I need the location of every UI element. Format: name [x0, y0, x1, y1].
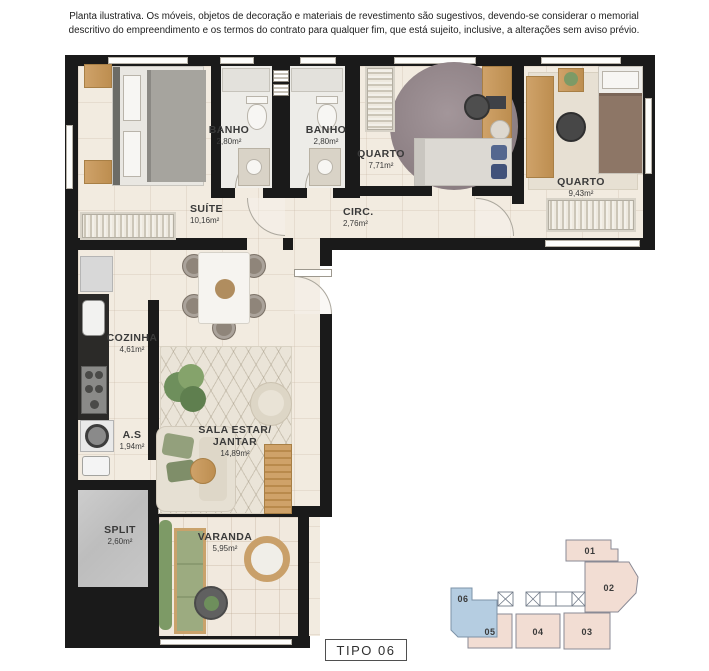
pillow: [123, 131, 141, 177]
keyplan-unit-label: 03: [581, 627, 592, 637]
room-name: VARANDA: [198, 531, 253, 543]
pillow: [491, 145, 507, 160]
burner: [95, 385, 103, 393]
key-plan: 01 02 03 04 05 06: [450, 536, 709, 658]
toilet-icon: [316, 96, 338, 104]
plant-icon: [564, 72, 578, 86]
blanket: [415, 139, 425, 185]
keyplan-unit-label: 05: [484, 627, 495, 637]
room-label-quarto-2: QUARTO 9,43m²: [549, 176, 613, 198]
armchair: [250, 382, 292, 426]
room-label-banho-1: BANHO 2,80m²: [200, 124, 258, 146]
kitchen-sink: [82, 300, 105, 336]
keyplan-core: [540, 592, 556, 606]
room-label-as: A.S 1,94m²: [102, 429, 162, 451]
room-label-sala: SALA ESTAR/ JANTAR 14,89m²: [193, 424, 277, 458]
fridge: [80, 256, 113, 292]
room-name: SUÍTE: [190, 203, 223, 215]
basin: [246, 159, 262, 175]
entry-door-leaf: [294, 269, 332, 277]
room-name: COZINHA: [107, 332, 158, 344]
window-segment: [220, 57, 254, 64]
type-label: TIPO 06: [337, 643, 396, 658]
wardrobe: [365, 66, 395, 132]
armchair-cushion: [258, 390, 284, 416]
toilet-icon: [246, 96, 268, 104]
wall-segment: [472, 186, 512, 196]
type-label-box: TIPO 06: [325, 639, 407, 661]
room-area: 4,61m²: [120, 345, 145, 354]
planter: [159, 520, 172, 630]
keyplan-core: [556, 592, 572, 606]
laundry-tank: [82, 456, 110, 476]
room-label-varanda: VARANDA 5,95m²: [191, 531, 259, 553]
room-label-banho-2: BANHO 2,80m²: [296, 124, 356, 146]
blanket: [147, 70, 206, 182]
room-name: BANHO: [209, 124, 250, 136]
wall-segment: [283, 238, 293, 250]
window-segment: [300, 57, 336, 64]
window-segment: [108, 57, 188, 64]
keyplan-unit-label: 02: [603, 583, 614, 593]
room-name: SPLIT: [104, 524, 136, 536]
disclaimer-text: Planta ilustrativa. Os móveis, objetos d…: [54, 10, 654, 38]
suite-wardrobe: [80, 212, 176, 240]
desk: [526, 76, 554, 178]
room-name: SALA ESTAR/ JANTAR: [193, 424, 277, 448]
room-label-suite: SUÍTE 10,16m²: [190, 203, 254, 225]
stool: [490, 120, 510, 140]
stove: [81, 366, 107, 414]
wall-segment: [360, 186, 432, 196]
desk-chair: [556, 112, 586, 142]
window-segment: [541, 57, 621, 64]
burner: [95, 371, 103, 379]
wall-segment: [65, 480, 159, 490]
plant-icon: [204, 596, 219, 611]
pillow: [491, 164, 507, 179]
outdoor-table: [194, 586, 228, 620]
window-segment: [645, 98, 652, 174]
room-area: 7,71m²: [369, 161, 394, 170]
room-name: A.S: [123, 429, 142, 441]
shaft-icon: [273, 84, 289, 96]
plant-leaf: [180, 386, 206, 412]
plant-icon: [164, 364, 208, 414]
room-area: 1,94m²: [120, 442, 145, 451]
centerpiece: [215, 279, 235, 299]
wall-segment: [320, 314, 332, 506]
burner: [90, 400, 99, 409]
room-area: 14,89m²: [220, 449, 249, 458]
room-label-circ: CIRC. 2,76m²: [343, 206, 393, 228]
blanket: [599, 93, 642, 173]
wall-segment: [512, 188, 524, 204]
window-segment: [66, 125, 73, 189]
keyplan-unit-label: 01: [584, 546, 595, 556]
burner: [85, 371, 93, 379]
room-area: 10,16m²: [190, 216, 219, 225]
desk-chair: [464, 94, 490, 120]
room-label-split: SPLIT 2,60m²: [88, 524, 152, 546]
keyplan-unit-label: 06: [457, 594, 468, 604]
wall-segment: [320, 250, 332, 266]
wall-segment: [263, 188, 307, 198]
vanity-sink: [309, 148, 341, 186]
window-segment: [545, 240, 640, 247]
room-area: 2,76m²: [343, 219, 368, 228]
shower: [291, 68, 343, 92]
room-area: 5,95m²: [213, 544, 238, 553]
nightstand: [84, 64, 112, 88]
door-arc: [294, 276, 332, 314]
pillow: [123, 75, 141, 121]
room-label-quarto-1: QUARTO 7,71m²: [350, 148, 412, 170]
wall-segment: [65, 587, 159, 636]
keyplan-unit-label: 04: [532, 627, 543, 637]
room-area: 9,43m²: [569, 189, 594, 198]
room-name: BANHO: [306, 124, 347, 136]
vanity-sink: [238, 148, 270, 186]
burner: [85, 385, 93, 393]
single-bed: [414, 138, 512, 186]
headboard: [113, 67, 120, 185]
pillow: [602, 71, 639, 89]
room-name: CIRC.: [343, 206, 374, 218]
dining-table: [198, 252, 250, 324]
room-area: 2,60m²: [108, 537, 133, 546]
room-label-cozinha: COZINHA 4,61m²: [100, 332, 164, 354]
shower: [222, 68, 270, 92]
sofa-cushion: [161, 433, 194, 460]
wall-segment: [333, 188, 360, 198]
basin: [317, 159, 333, 175]
suite-bed: [112, 66, 204, 186]
coffee-table: [190, 458, 216, 484]
room-area: 2,80m²: [314, 137, 339, 146]
floorplan-page: Planta ilustrativa. Os móveis, objetos d…: [0, 0, 709, 671]
wall-segment: [211, 188, 235, 198]
railing-segment: [160, 639, 292, 645]
wall-segment: [298, 517, 309, 648]
nightstand: [84, 160, 112, 184]
room-name: QUARTO: [357, 148, 405, 160]
shaft-icon: [273, 70, 289, 82]
room-name: QUARTO: [557, 176, 605, 188]
wardrobe: [546, 198, 636, 232]
room-area: 2,80m²: [217, 137, 242, 146]
single-bed: [598, 66, 643, 174]
